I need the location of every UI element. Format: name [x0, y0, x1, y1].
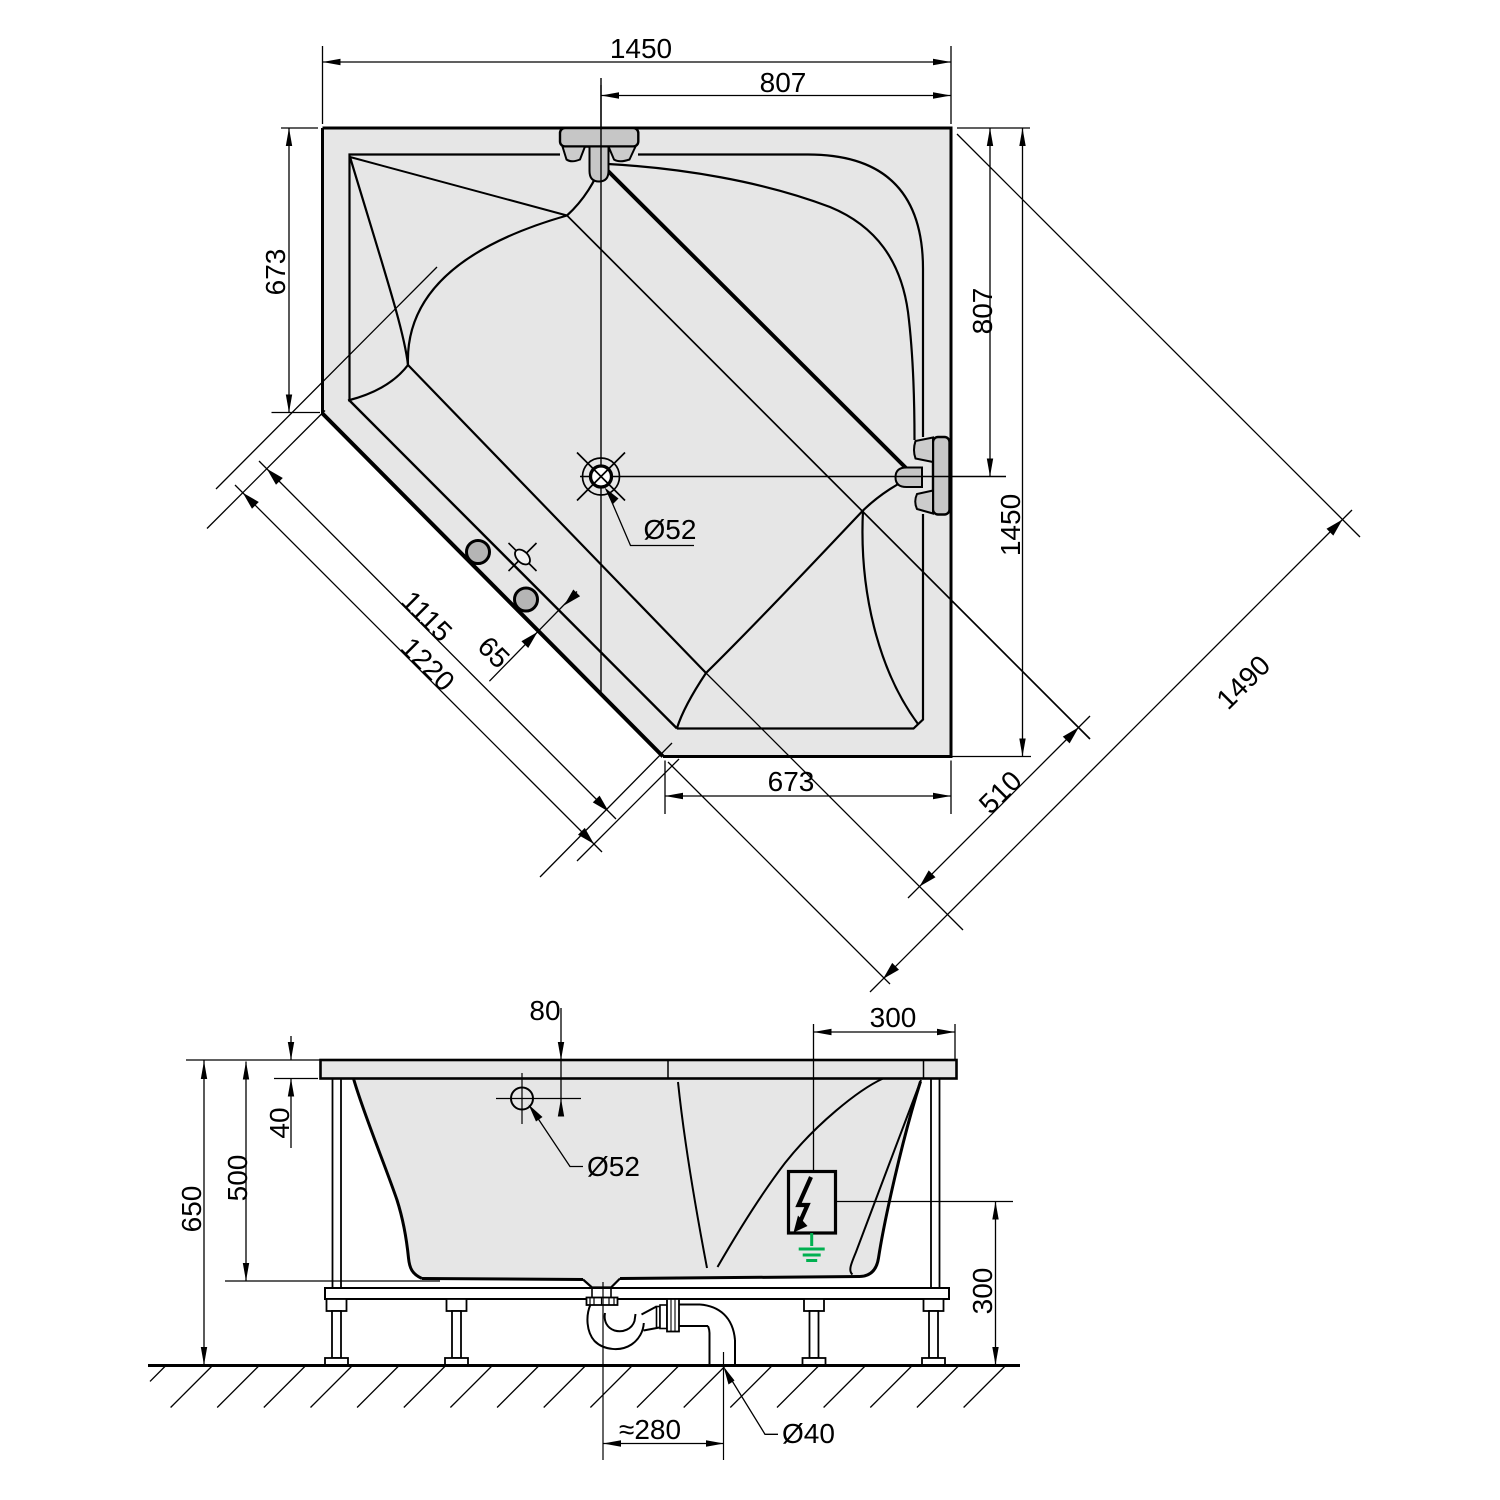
svg-text:Ø52: Ø52	[587, 1151, 640, 1182]
svg-text:500: 500	[222, 1155, 253, 1202]
svg-text:673: 673	[260, 249, 291, 296]
svg-text:1450: 1450	[610, 33, 672, 64]
svg-text:807: 807	[760, 67, 807, 98]
svg-text:Ø40: Ø40	[782, 1418, 835, 1449]
svg-text:300: 300	[967, 1268, 998, 1315]
svg-text:80: 80	[529, 995, 560, 1026]
svg-text:40: 40	[264, 1107, 295, 1138]
svg-text:1450: 1450	[995, 494, 1026, 556]
svg-text:673: 673	[768, 766, 815, 797]
svg-text:300: 300	[870, 1002, 917, 1033]
svg-text:Ø52: Ø52	[644, 514, 697, 545]
svg-text:≈280: ≈280	[619, 1414, 681, 1445]
svg-text:807: 807	[967, 288, 998, 335]
svg-text:650: 650	[176, 1186, 207, 1233]
